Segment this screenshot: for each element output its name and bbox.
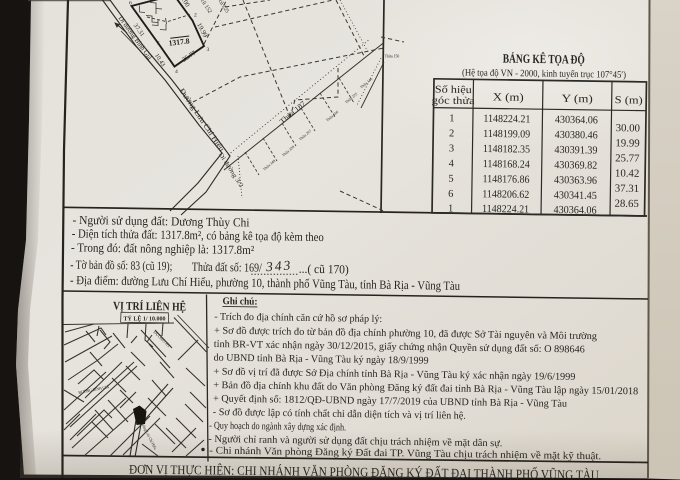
svg-text:430341.45: 430341.45 (554, 189, 597, 202)
svg-text:37.31: 37.31 (615, 183, 639, 195)
svg-text:6: 6 (448, 189, 453, 200)
svg-text:Y (m): Y (m) (562, 93, 594, 105)
svg-text:VỊ TRÍ LIÊN HỆ: VỊ TRÍ LIÊN HỆ (113, 298, 186, 313)
svg-text:BẢNG KÊ TỌA ĐỘ: BẢNG KÊ TỌA ĐỘ (503, 52, 585, 67)
svg-text:6: 6 (129, 1, 132, 7)
svg-text:25.77: 25.77 (615, 152, 640, 164)
svg-text:1148176.86: 1148176.86 (482, 173, 530, 186)
svg-text:3: 3 (449, 143, 454, 154)
svg-text:1148199.09: 1148199.09 (483, 128, 530, 141)
svg-text:430364.06: 430364.06 (555, 114, 599, 127)
svg-text:430380.46: 430380.46 (555, 129, 599, 142)
svg-text:10.42: 10.42 (615, 167, 639, 179)
svg-text:343: 343 (265, 257, 293, 274)
svg-text:2: 2 (194, 13, 197, 19)
svg-text:Thửa đất số: 169/: Thửa đất số: 169/ (192, 260, 263, 275)
svg-text:430364.06: 430364.06 (554, 204, 598, 217)
svg-text:1148224.21: 1148224.21 (482, 203, 529, 216)
svg-text:1148182.35: 1148182.35 (483, 143, 530, 156)
svg-text:Số hiệu: Số hiệu (435, 85, 473, 97)
svg-text:Thửa 150: Thửa 150 (385, 55, 400, 59)
svg-text:30.00: 30.00 (616, 122, 640, 134)
svg-text:430369.82: 430369.82 (554, 159, 597, 172)
svg-text:...( cũ 170): ...( cũ 170) (299, 262, 349, 277)
svg-text:19.99: 19.99 (615, 137, 639, 149)
svg-text:S (m): S (m) (615, 95, 644, 106)
svg-text:- Trong đó: đất nông nghiệp là: - Trong đó: đất nông nghiệp là: 1317.8m² (71, 240, 254, 257)
svg-text:2: 2 (449, 128, 454, 139)
svg-text:X (m): X (m) (493, 91, 525, 103)
svg-text:4: 4 (175, 69, 178, 75)
svg-text:430363.96: 430363.96 (554, 174, 598, 187)
svg-text:1: 1 (449, 113, 454, 124)
svg-text:28.65: 28.65 (614, 198, 638, 210)
svg-text:5: 5 (157, 41, 160, 47)
svg-text:3: 3 (207, 47, 210, 53)
svg-text:1148206.62: 1148206.62 (482, 188, 529, 201)
svg-text:góc thửa: góc thửa (432, 95, 476, 107)
svg-text:TỶ LỆ 1/ 10.000: TỶ LỆ 1/ 10.000 (124, 314, 166, 322)
svg-text:5: 5 (448, 174, 453, 185)
svg-text:- Tờ bản đồ số: 83 (cũ 19);: - Tờ bản đồ số: 83 (cũ 19); (70, 258, 172, 274)
svg-text:- Quy hoạch do ngành xây dựng: - Quy hoạch do ngành xây dựng xác định. (209, 420, 346, 433)
svg-text:430391.39: 430391.39 (554, 144, 597, 157)
svg-text:1: 1 (448, 203, 453, 214)
svg-text:1148224.21: 1148224.21 (483, 113, 530, 126)
svg-text:Ghi chú:: Ghi chú: (222, 296, 257, 308)
svg-text:1148168.24: 1148168.24 (483, 158, 531, 171)
